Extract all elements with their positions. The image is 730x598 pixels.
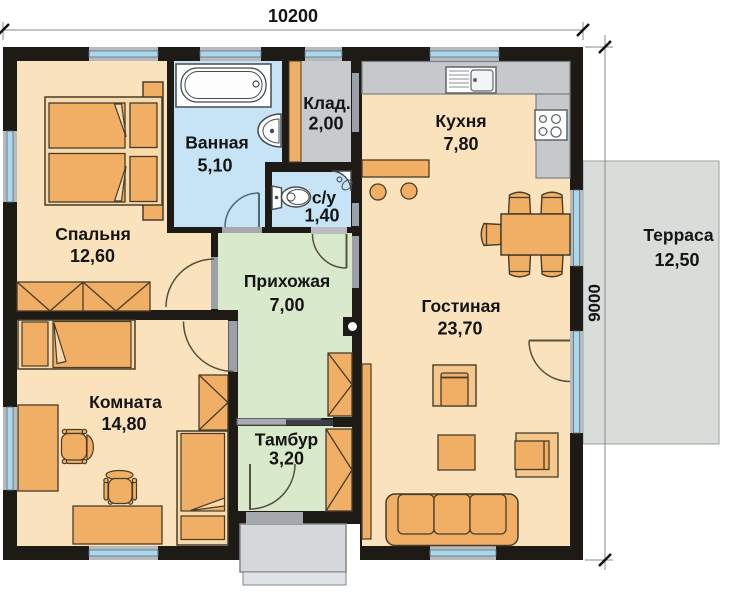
svg-text:12,50: 12,50 [654, 250, 699, 270]
svg-text:с/у: с/у [312, 188, 337, 208]
svg-text:Терраса: Терраса [643, 225, 714, 245]
svg-text:1,40: 1,40 [304, 206, 339, 226]
svg-text:7,00: 7,00 [269, 295, 304, 315]
svg-text:Тамбур: Тамбур [255, 430, 318, 450]
svg-text:3,20: 3,20 [269, 449, 304, 469]
svg-text:23,70: 23,70 [437, 319, 482, 339]
svg-text:9000: 9000 [585, 284, 604, 322]
svg-text:7,80: 7,80 [443, 134, 478, 154]
svg-text:Прихожая: Прихожая [244, 271, 330, 291]
svg-text:Гостиная: Гостиная [421, 296, 500, 316]
svg-text:Кухня: Кухня [435, 111, 486, 131]
svg-text:14,80: 14,80 [101, 414, 146, 434]
svg-text:Клад.: Клад. [303, 93, 351, 113]
svg-text:5,10: 5,10 [197, 156, 232, 176]
svg-text:Ванная: Ванная [185, 133, 248, 153]
svg-text:Комната: Комната [89, 392, 162, 412]
svg-text:12,60: 12,60 [70, 246, 115, 266]
svg-text:Спальня: Спальня [55, 224, 131, 244]
svg-text:10200: 10200 [268, 6, 318, 26]
svg-text:2,00: 2,00 [308, 114, 343, 134]
